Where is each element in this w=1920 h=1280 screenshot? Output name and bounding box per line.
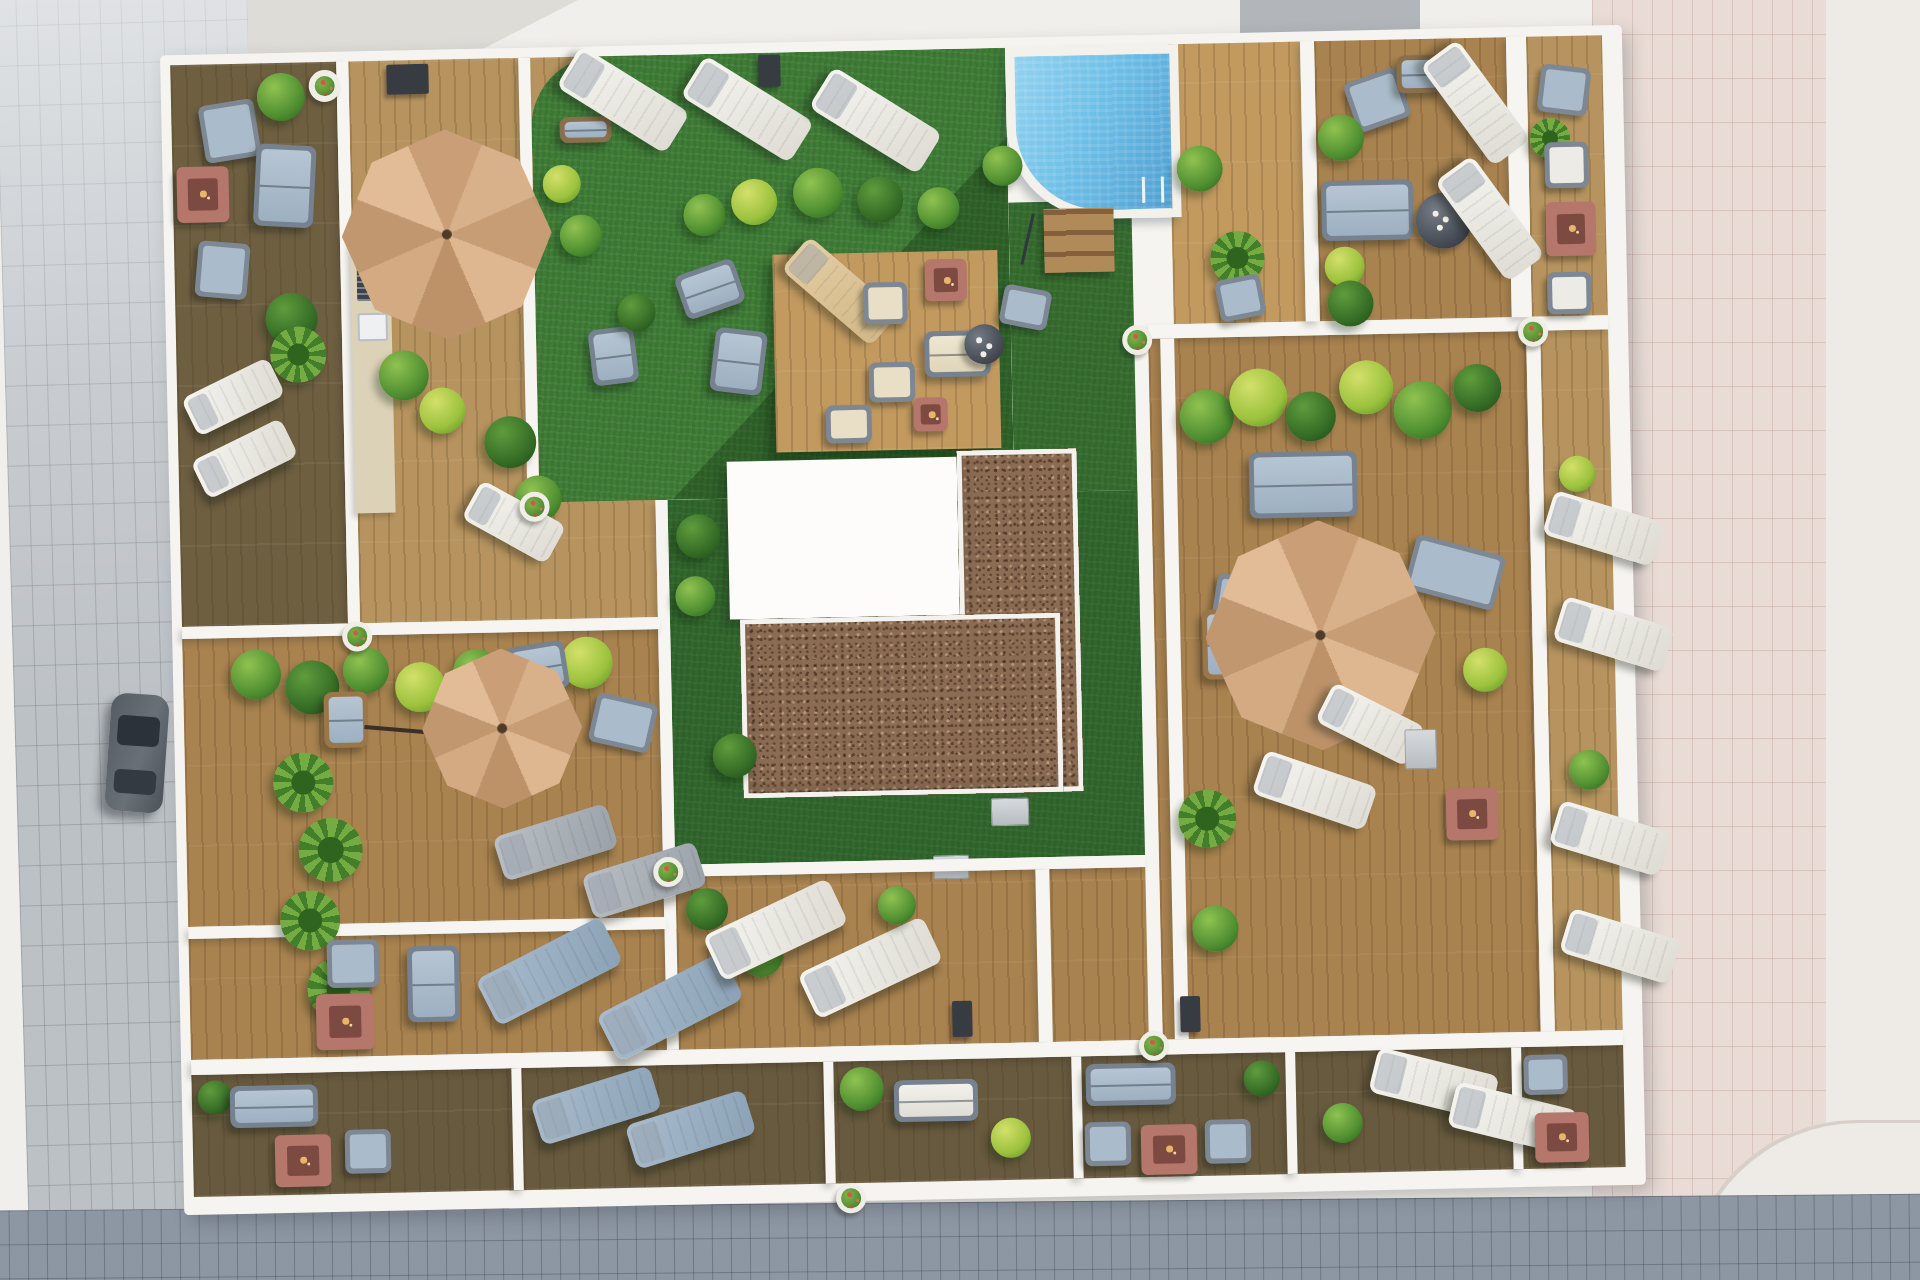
building-roof	[160, 25, 1646, 1215]
bollard	[1180, 996, 1201, 1032]
outdoor-sofa	[559, 116, 612, 143]
firepit-table	[1446, 788, 1499, 841]
bollard	[952, 1001, 973, 1037]
lawn-light-post	[758, 54, 781, 86]
firepit-table	[1534, 1112, 1589, 1163]
deck-chair	[863, 282, 908, 325]
armchair	[197, 98, 262, 164]
firepit-table	[316, 993, 375, 1050]
parasol-stand	[323, 691, 368, 748]
lounge-chair	[1085, 1121, 1132, 1166]
right-road-asphalt	[1826, 0, 1920, 1280]
swimming-pool	[1005, 44, 1182, 221]
armchair	[194, 240, 251, 300]
core-roof-white	[727, 457, 960, 620]
ac-unit	[991, 797, 1030, 826]
lounge-chair	[998, 283, 1053, 331]
parked-car	[104, 692, 170, 814]
lounge-chair	[345, 1129, 392, 1174]
outdoor-sofa	[1085, 1062, 1176, 1106]
firepit-table	[924, 259, 967, 302]
deck-vent	[386, 64, 429, 95]
lounge-chair	[1205, 1119, 1252, 1164]
outdoor-sofa	[230, 1084, 319, 1128]
outdoor-sofa	[587, 325, 640, 386]
firepit-table	[176, 166, 229, 223]
lounge-chair	[1547, 272, 1592, 315]
armchair	[327, 939, 380, 988]
aerial-render-scene	[0, 0, 1920, 1280]
pool-ladder-icon	[1142, 176, 1165, 202]
firepit-table	[275, 1134, 332, 1187]
outdoor-sofa	[407, 945, 461, 1022]
firepit-table	[1545, 201, 1596, 256]
lounge-chair	[1214, 273, 1267, 323]
pool-steps	[1043, 208, 1114, 273]
firepit-table	[1141, 1124, 1198, 1175]
deck-chair	[825, 405, 872, 444]
lounge-chair	[1544, 142, 1589, 189]
outdoor-sofa	[253, 143, 317, 228]
deck-chair	[869, 362, 916, 403]
sink-icon	[357, 313, 388, 342]
armchair	[1536, 63, 1591, 117]
outdoor-sofa	[1249, 450, 1358, 518]
bush	[982, 145, 1023, 186]
side-table-cube	[1404, 729, 1437, 770]
core-roof-gravel-south	[740, 613, 1064, 799]
outdoor-sofa	[1321, 179, 1414, 241]
outdoor-sofa	[709, 327, 768, 397]
firepit-table	[913, 397, 948, 432]
outdoor-sofa	[894, 1079, 979, 1123]
lounge-chair	[1523, 1054, 1568, 1095]
